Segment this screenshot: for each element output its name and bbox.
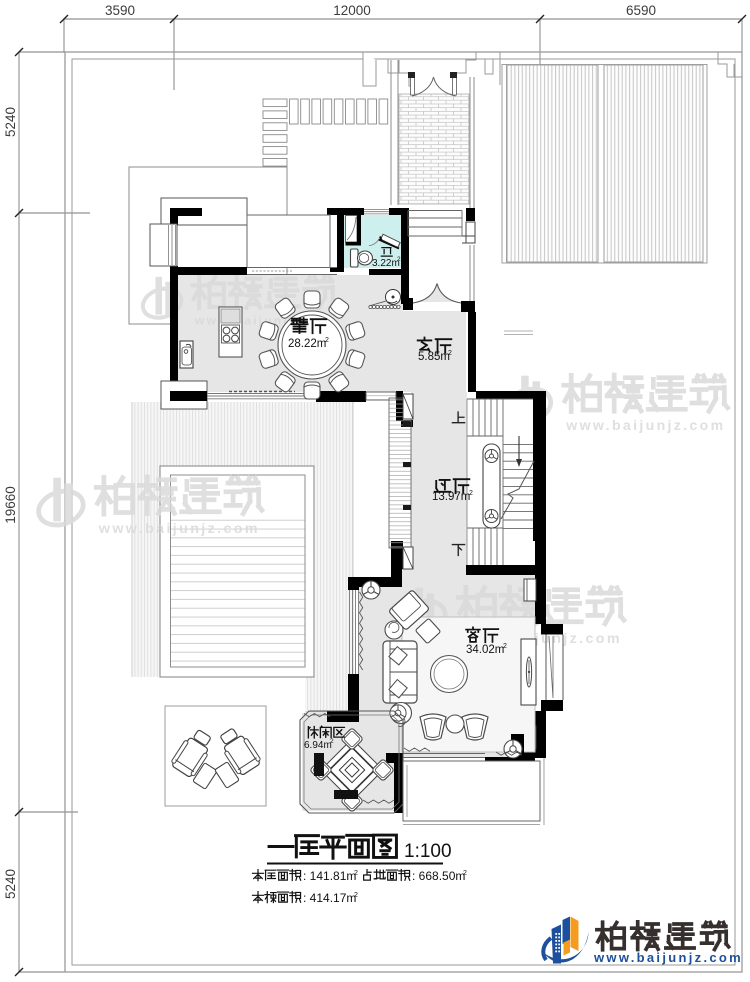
- svg-text:5.85m: 5.85m: [418, 351, 450, 363]
- svg-text:1:100: 1:100: [404, 841, 452, 862]
- svg-text:3590: 3590: [105, 3, 135, 18]
- svg-text:2: 2: [397, 256, 401, 263]
- svg-text:19660: 19660: [3, 486, 18, 524]
- svg-text:www.baijunjz.com: www.baijunjz.com: [593, 950, 743, 965]
- svg-text:34.02m: 34.02m: [466, 644, 504, 656]
- svg-text:2: 2: [503, 643, 507, 650]
- svg-text:2: 2: [354, 870, 358, 877]
- svg-text:5240: 5240: [3, 107, 18, 137]
- svg-text:2: 2: [469, 490, 473, 497]
- svg-text:www.baijunjz.com: www.baijunjz.com: [565, 417, 725, 433]
- svg-text:5240: 5240: [3, 869, 18, 899]
- svg-text:13.97m: 13.97m: [432, 491, 470, 503]
- svg-text:: 414.17m: : 414.17m: [303, 891, 356, 905]
- svg-text:: 141.81m: : 141.81m: [303, 869, 356, 883]
- svg-text:www.baijunjz.com: www.baijunjz.com: [98, 521, 260, 537]
- svg-text:2: 2: [448, 350, 452, 357]
- svg-text:3.22m: 3.22m: [372, 258, 400, 269]
- svg-text:2: 2: [354, 892, 358, 899]
- svg-text:: 668.50m: : 668.50m: [412, 869, 465, 883]
- svg-text:6.94m: 6.94m: [304, 740, 332, 751]
- svg-text:2: 2: [330, 738, 334, 745]
- svg-text:6590: 6590: [626, 3, 656, 18]
- svg-text:2: 2: [463, 870, 467, 877]
- svg-text:12000: 12000: [333, 3, 371, 18]
- svg-text:2: 2: [325, 337, 329, 344]
- svg-text:28.22m: 28.22m: [288, 338, 326, 350]
